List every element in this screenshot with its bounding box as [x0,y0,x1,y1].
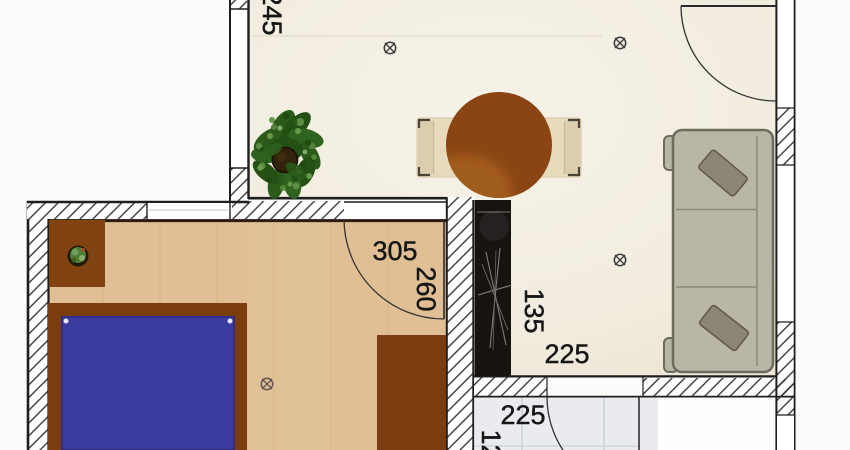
svg-text:135: 135 [519,288,549,333]
svg-text:120: 120 [476,429,506,450]
svg-text:225: 225 [500,400,545,430]
svg-text:305: 305 [372,236,417,266]
svg-text:260: 260 [411,266,441,311]
svg-text:225: 225 [544,339,589,369]
svg-text:245: 245 [257,0,287,36]
